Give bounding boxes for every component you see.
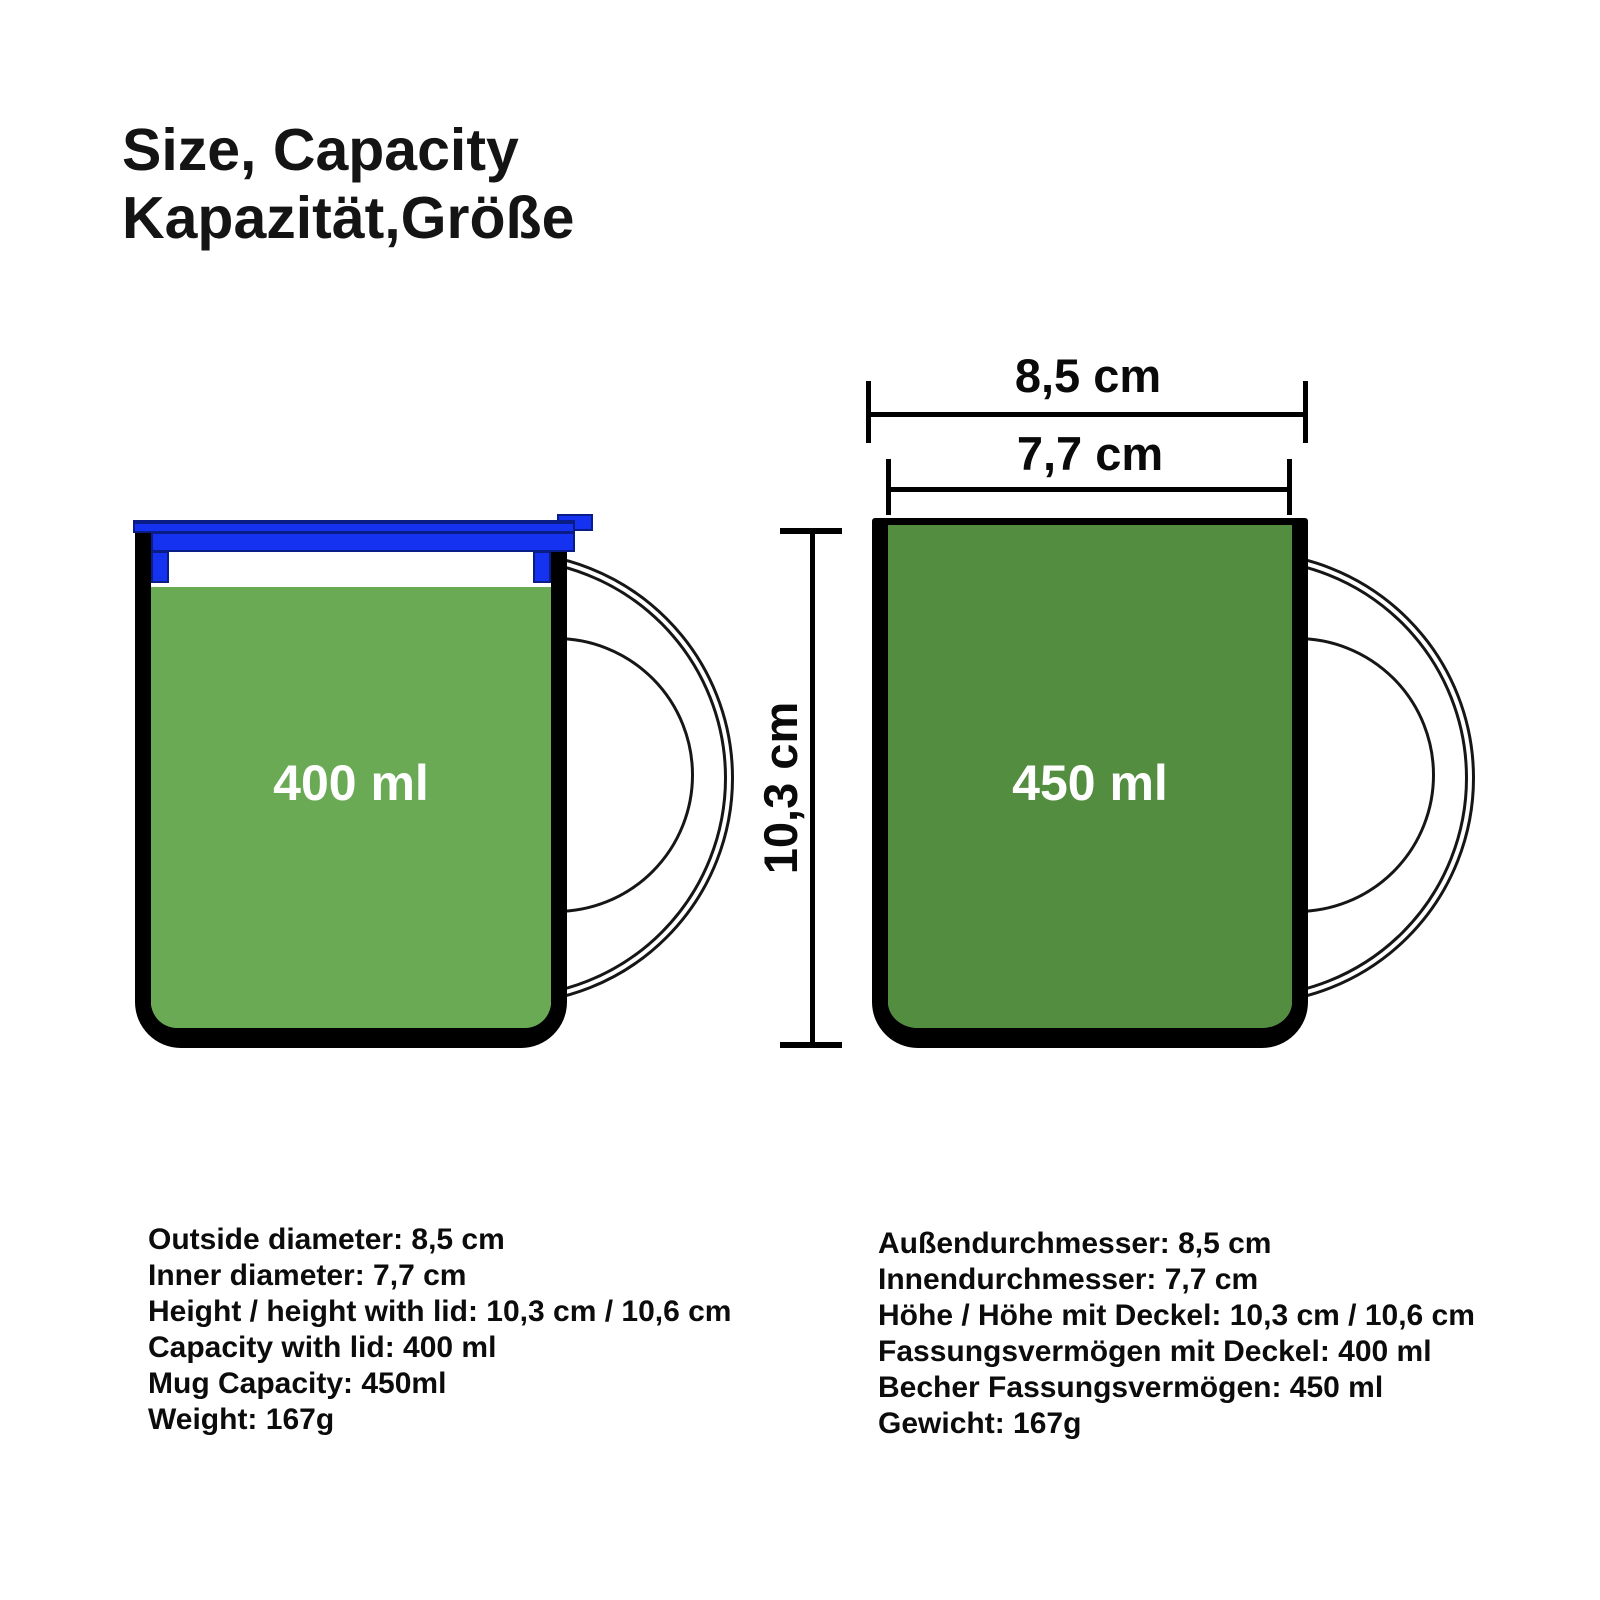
page-title-line-en: Size, Capacity — [122, 116, 574, 184]
spec-line: Height / height with lid: 10,3 cm / 10,6… — [148, 1294, 731, 1330]
height-line — [810, 531, 815, 1045]
right-mug-capacity-label: 450 ml — [872, 753, 1308, 813]
spec-line: Inner diameter: 7,7 cm — [148, 1258, 731, 1294]
spec-line: Mug Capacity: 450ml — [148, 1366, 731, 1402]
spec-line: Capacity with lid: 400 ml — [148, 1330, 731, 1366]
outer-diameter-line — [870, 412, 1306, 417]
height-tick-bottom — [780, 1042, 842, 1048]
spec-line: Höhe / Höhe mit Deckel: 10,3 cm / 10,6 c… — [878, 1298, 1475, 1334]
spec-line: Außendurchmesser: 8,5 cm — [878, 1226, 1475, 1262]
outer-diameter-tick-right — [1303, 381, 1308, 443]
height-label: 10,3 cm — [755, 638, 807, 938]
inner-diameter-label: 7,7 cm — [890, 428, 1290, 480]
inner-diameter-line — [890, 487, 1290, 492]
spec-line: Innendurchmesser: 7,7 cm — [878, 1262, 1475, 1298]
spec-line: Fassungsvermögen mit Deckel: 400 ml — [878, 1334, 1475, 1370]
specs-english: Outside diameter: 8,5 cm Inner diameter:… — [148, 1222, 731, 1438]
height-tick-top — [780, 528, 842, 534]
inner-diameter-tick-right — [1287, 459, 1292, 515]
spec-line: Outside diameter: 8,5 cm — [148, 1222, 731, 1258]
outer-diameter-label: 8,5 cm — [870, 350, 1306, 402]
left-mug-lid-seal-left — [151, 551, 169, 583]
inner-diameter-tick-left — [886, 459, 891, 515]
spec-line: Weight: 167g — [148, 1402, 731, 1438]
outer-diameter-tick-left — [866, 381, 871, 443]
product-dimension-diagram: Size, Capacity Kapazität,Größe 400 ml 45… — [0, 0, 1600, 1600]
spec-line: Gewicht: 167g — [878, 1406, 1475, 1442]
left-mug-capacity-label: 400 ml — [135, 753, 567, 813]
left-mug-lid-seal-right — [533, 551, 551, 583]
left-mug-lid-mid-bar — [151, 532, 575, 552]
spec-line: Becher Fassungsvermögen: 450 ml — [878, 1370, 1475, 1406]
specs-german: Außendurchmesser: 8,5 cm Innendurchmesse… — [878, 1226, 1475, 1442]
page-title-line-de: Kapazität,Größe — [122, 184, 574, 252]
page-title: Size, Capacity Kapazität,Größe — [122, 116, 574, 252]
